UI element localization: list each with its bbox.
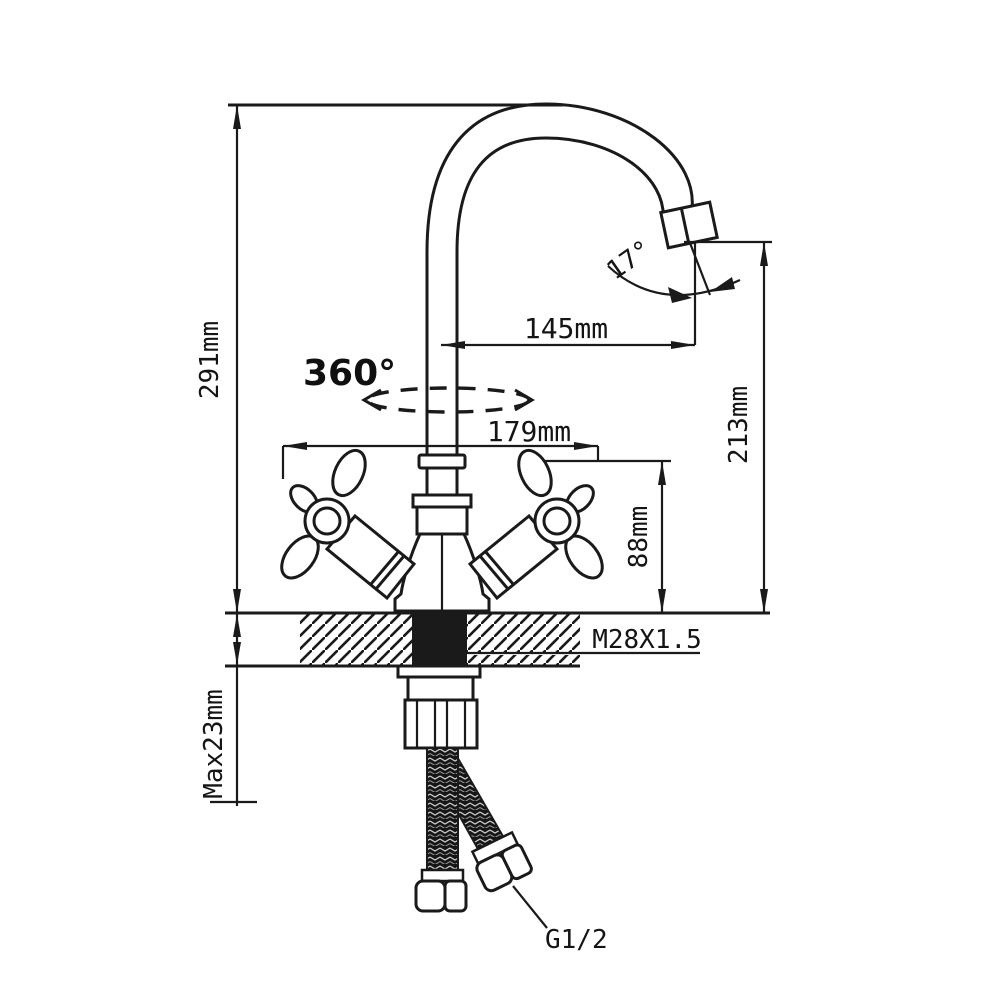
faucet-dimension-drawing: 291mm Max23mm 145mm 213mm 179mm 88mm 17° bbox=[0, 0, 1000, 1000]
arrowhead bbox=[760, 242, 768, 266]
arrowhead bbox=[671, 341, 695, 349]
shank-sleeve bbox=[408, 677, 473, 700]
hose-ferrule-vertical bbox=[422, 870, 463, 881]
under-deck-hardware bbox=[398, 666, 533, 911]
technical-drawing-canvas: 291mm Max23mm 145mm 213mm 179mm 88mm 17° bbox=[0, 0, 1000, 1000]
label-mount-thread: M28X1.5 bbox=[592, 625, 702, 655]
label-handle-span: 179mm bbox=[487, 415, 571, 448]
body-collar-band bbox=[413, 495, 471, 507]
arrowhead bbox=[710, 277, 735, 292]
spout-outer-curve bbox=[427, 104, 692, 252]
pipe-flange-ring bbox=[419, 455, 465, 468]
spout-axis-line bbox=[690, 243, 710, 295]
label-body-height: 88mm bbox=[624, 506, 654, 569]
label-spout-height: 213mm bbox=[724, 386, 754, 464]
body-collar bbox=[417, 507, 467, 534]
swivel-arrow-right bbox=[515, 390, 532, 410]
arrowhead bbox=[760, 589, 768, 613]
left-handle-hub-center bbox=[314, 508, 340, 534]
deck-hatch-right-strip bbox=[467, 655, 580, 666]
label-spout-angle: 17° bbox=[602, 235, 658, 287]
hose-hex-fitting-left-b bbox=[445, 881, 466, 911]
label-swivel-rotation: 360° bbox=[303, 353, 396, 394]
label-overall-height: 291mm bbox=[195, 321, 225, 399]
right-handle-hub-center bbox=[544, 508, 570, 534]
deck-hatch-left bbox=[300, 613, 412, 666]
arrowhead bbox=[233, 589, 241, 613]
braided-hose-vertical bbox=[427, 748, 458, 870]
arrowhead bbox=[233, 105, 241, 129]
arrowhead bbox=[441, 341, 465, 349]
left-handle-lobe-top bbox=[326, 445, 372, 500]
arrowhead bbox=[574, 442, 598, 450]
leader-line-g12 bbox=[513, 886, 547, 928]
arrowhead bbox=[658, 461, 666, 485]
arrowhead bbox=[283, 442, 307, 450]
right-handle-lobe-top bbox=[512, 445, 558, 500]
threaded-shank bbox=[412, 613, 467, 666]
spout-inner-curve bbox=[457, 138, 663, 252]
hose-hex-fitting-left-a bbox=[416, 881, 445, 911]
arrowhead bbox=[233, 642, 241, 665]
mounting-washer bbox=[398, 666, 480, 677]
label-max-deck-thickness: Max23mm bbox=[199, 689, 229, 799]
deck-hatch-right bbox=[467, 613, 580, 652]
label-spout-reach: 145mm bbox=[524, 312, 608, 345]
arrowhead bbox=[233, 614, 241, 637]
mounting-nut bbox=[405, 700, 477, 748]
arrowhead bbox=[658, 589, 666, 613]
label-hose-thread: G1/2 bbox=[545, 925, 608, 955]
